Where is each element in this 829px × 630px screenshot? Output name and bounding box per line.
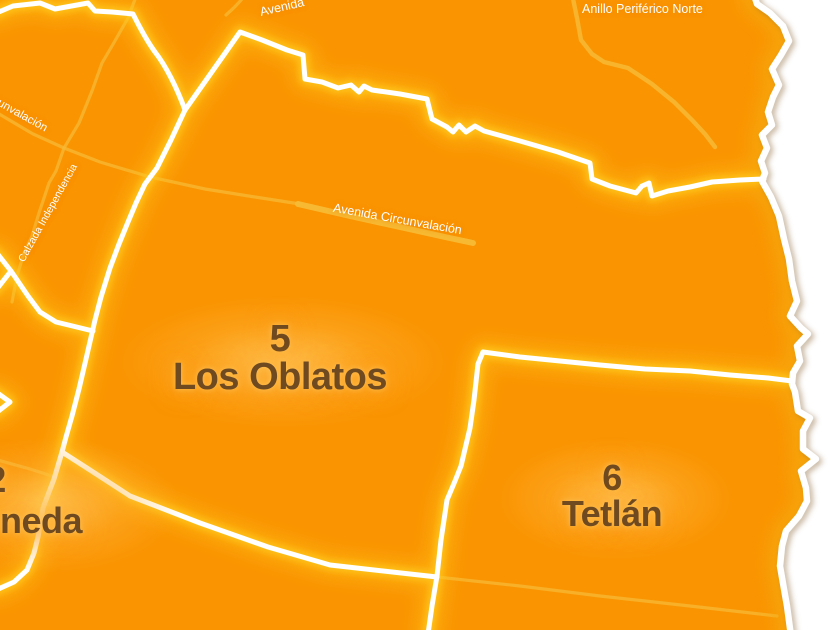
district-6-number: 6 bbox=[462, 460, 762, 496]
district-6-name: Tetlán bbox=[462, 496, 762, 532]
road-label-periferico-norte: Anillo Periférico Norte bbox=[582, 2, 703, 16]
district-label-5: 5 Los Oblatos bbox=[130, 320, 430, 396]
district-5-number: 5 bbox=[130, 320, 430, 358]
district-label-2-number: 2 bbox=[0, 462, 96, 498]
district-5-name: Los Oblatos bbox=[130, 358, 430, 396]
map-stage: 5 Los Oblatos 6 Tetlán 2 neda Avenida Ci… bbox=[0, 0, 829, 630]
district-label-6: 6 Tetlán bbox=[462, 460, 762, 532]
district-label-2-name: neda bbox=[0, 503, 200, 539]
